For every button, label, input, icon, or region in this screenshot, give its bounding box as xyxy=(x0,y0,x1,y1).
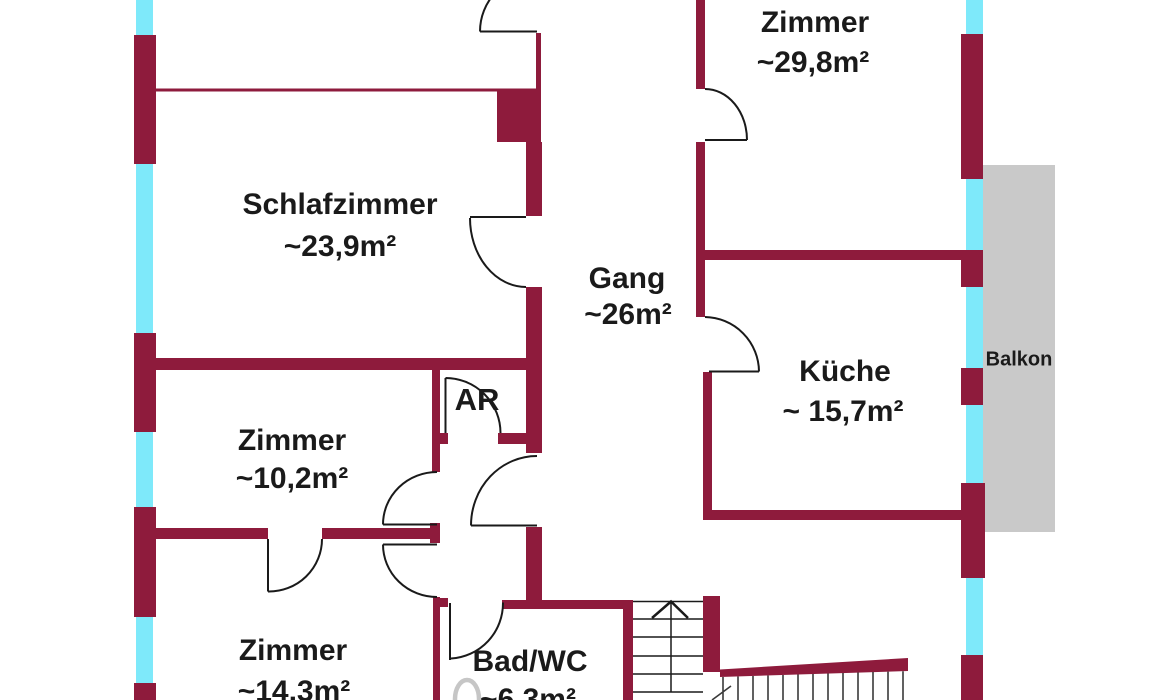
room-area-bad: ~6,3m² xyxy=(480,683,576,700)
room-label-zimmer-10: Zimmer xyxy=(238,424,346,458)
room-area-zimmer-29: ~29,8m² xyxy=(757,46,870,80)
room-label-zimmer-29: Zimmer xyxy=(761,6,869,40)
door-swing-arc xyxy=(471,456,537,526)
railing-band xyxy=(720,658,908,677)
door-swing-arc xyxy=(470,218,526,287)
door-swing-arc xyxy=(705,317,759,372)
room-area-schlafzimmer: ~23,9m² xyxy=(284,230,397,264)
room-label-bad: Bad/WC xyxy=(473,645,588,679)
room-area-kueche: ~ 15,7m² xyxy=(783,395,904,429)
room-area-zimmer-14: ~14,3m² xyxy=(238,675,351,700)
room-area-zimmer-10: ~10,2m² xyxy=(236,462,349,496)
room-label-balkon: Balkon xyxy=(986,349,1053,372)
door-swing-arc xyxy=(480,0,537,32)
door-swing-arc xyxy=(705,89,747,140)
room-label-ar: AR xyxy=(455,382,500,418)
door-swing-arc xyxy=(383,472,437,525)
wc-fixture-icon xyxy=(455,680,479,700)
room-label-zimmer-14: Zimmer xyxy=(239,634,347,668)
door-swing-arc xyxy=(268,539,322,592)
floorplan: Schlafzimmer ~23,9m² Zimmer ~29,8m² Gang… xyxy=(0,0,1169,700)
room-label-gang: Gang xyxy=(589,262,666,296)
room-label-schlafzimmer: Schlafzimmer xyxy=(242,188,437,222)
staircase xyxy=(633,602,703,693)
stair-direction-arrow xyxy=(652,602,688,619)
room-area-gang: ~26m² xyxy=(584,298,672,332)
room-label-kueche: Küche xyxy=(799,355,891,389)
door-swing-arc xyxy=(383,545,437,598)
